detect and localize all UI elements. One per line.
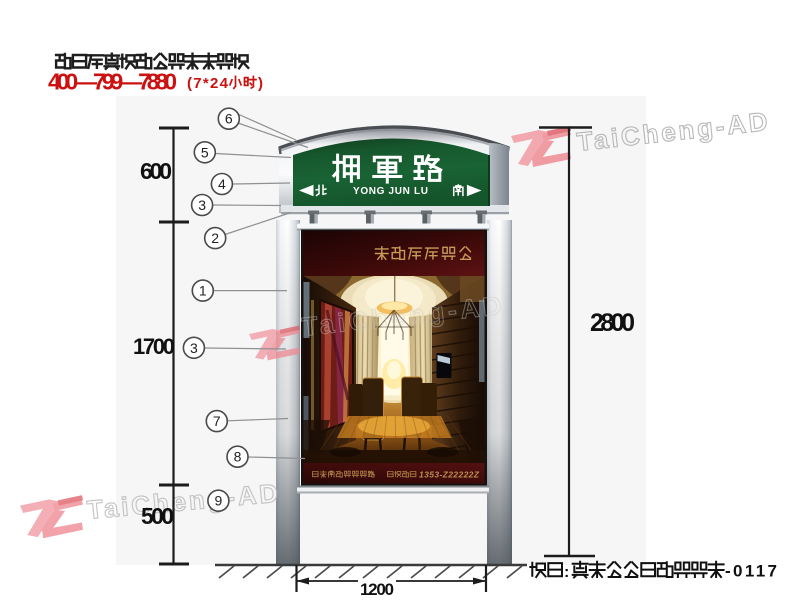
- svg-text:3: 3: [190, 340, 198, 356]
- svg-text:4: 4: [218, 176, 226, 192]
- svg-text:(7*24: (7*24: [187, 75, 229, 92]
- svg-text:2: 2: [211, 230, 219, 246]
- svg-text:7: 7: [213, 413, 221, 429]
- svg-text:): ): [258, 75, 263, 92]
- svg-text:-0117: -0117: [725, 562, 777, 581]
- svg-text:500: 500: [141, 503, 174, 529]
- svg-text:1353-Z22222Z: 1353-Z22222Z: [419, 470, 480, 480]
- svg-text:600: 600: [140, 158, 172, 184]
- svg-text:8: 8: [234, 449, 242, 465]
- svg-text:400—799—7880: 400—799—7880: [48, 69, 177, 95]
- svg-text:5: 5: [201, 144, 209, 160]
- svg-text:6: 6: [225, 111, 233, 127]
- svg-text:1700: 1700: [133, 334, 175, 359]
- svg-text:2800: 2800: [590, 309, 635, 337]
- svg-text:YONG JUN LU: YONG JUN LU: [353, 186, 429, 197]
- svg-text::: :: [564, 564, 569, 581]
- svg-text:1200: 1200: [360, 580, 394, 599]
- svg-text:3: 3: [198, 197, 206, 213]
- svg-text:1: 1: [199, 283, 207, 299]
- svg-text:9: 9: [215, 493, 223, 509]
